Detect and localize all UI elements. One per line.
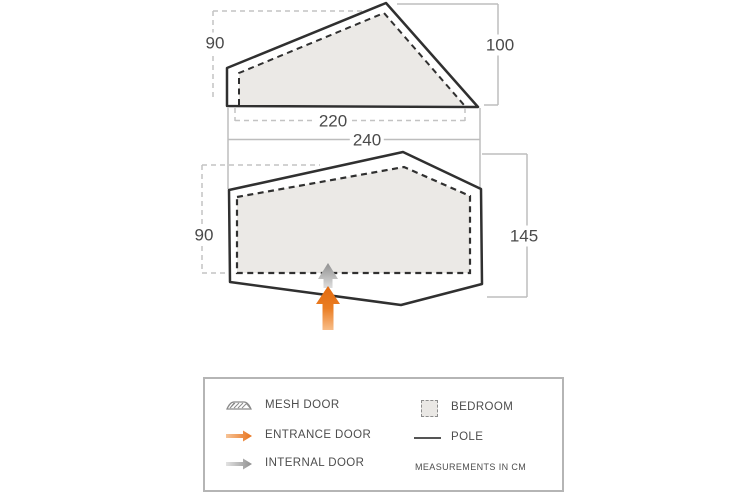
dim-label-100: 100	[483, 35, 517, 56]
dim-label-220: 220	[316, 111, 350, 132]
tent-spec-diagram: 90 100 220 240 90 145 MESH DOOR ENTRANCE…	[0, 0, 750, 500]
dim-label-90-elevation: 90	[203, 33, 228, 54]
legend-item-internal-door: INTERNAL DOOR	[225, 457, 364, 471]
dim-label-90-plan: 90	[192, 225, 217, 246]
legend-item-entrance-door: ENTRANCE DOOR	[225, 429, 371, 443]
pole-line-icon	[413, 437, 441, 439]
legend-item-pole: POLE	[413, 431, 483, 445]
dim-label-240: 240	[350, 130, 384, 151]
legend-label-mesh-door: MESH DOOR	[265, 400, 340, 412]
legend-item-mesh-door: MESH DOOR	[225, 399, 340, 413]
legend-box: MESH DOOR ENTRANCE DOOR INTERNAL DOOR BE	[203, 377, 564, 492]
legend-label-pole: POLE	[451, 432, 483, 444]
legend-measurements-note: MEASUREMENTS IN CM	[415, 462, 526, 472]
legend-label-entrance-door: ENTRANCE DOOR	[265, 430, 371, 442]
bedroom-swatch-icon	[417, 400, 441, 417]
legend-item-bedroom: BEDROOM	[417, 399, 513, 417]
legend-label-bedroom: BEDROOM	[451, 402, 513, 414]
legend-label-internal-door: INTERNAL DOOR	[265, 458, 364, 470]
dim-label-145: 145	[507, 226, 541, 247]
